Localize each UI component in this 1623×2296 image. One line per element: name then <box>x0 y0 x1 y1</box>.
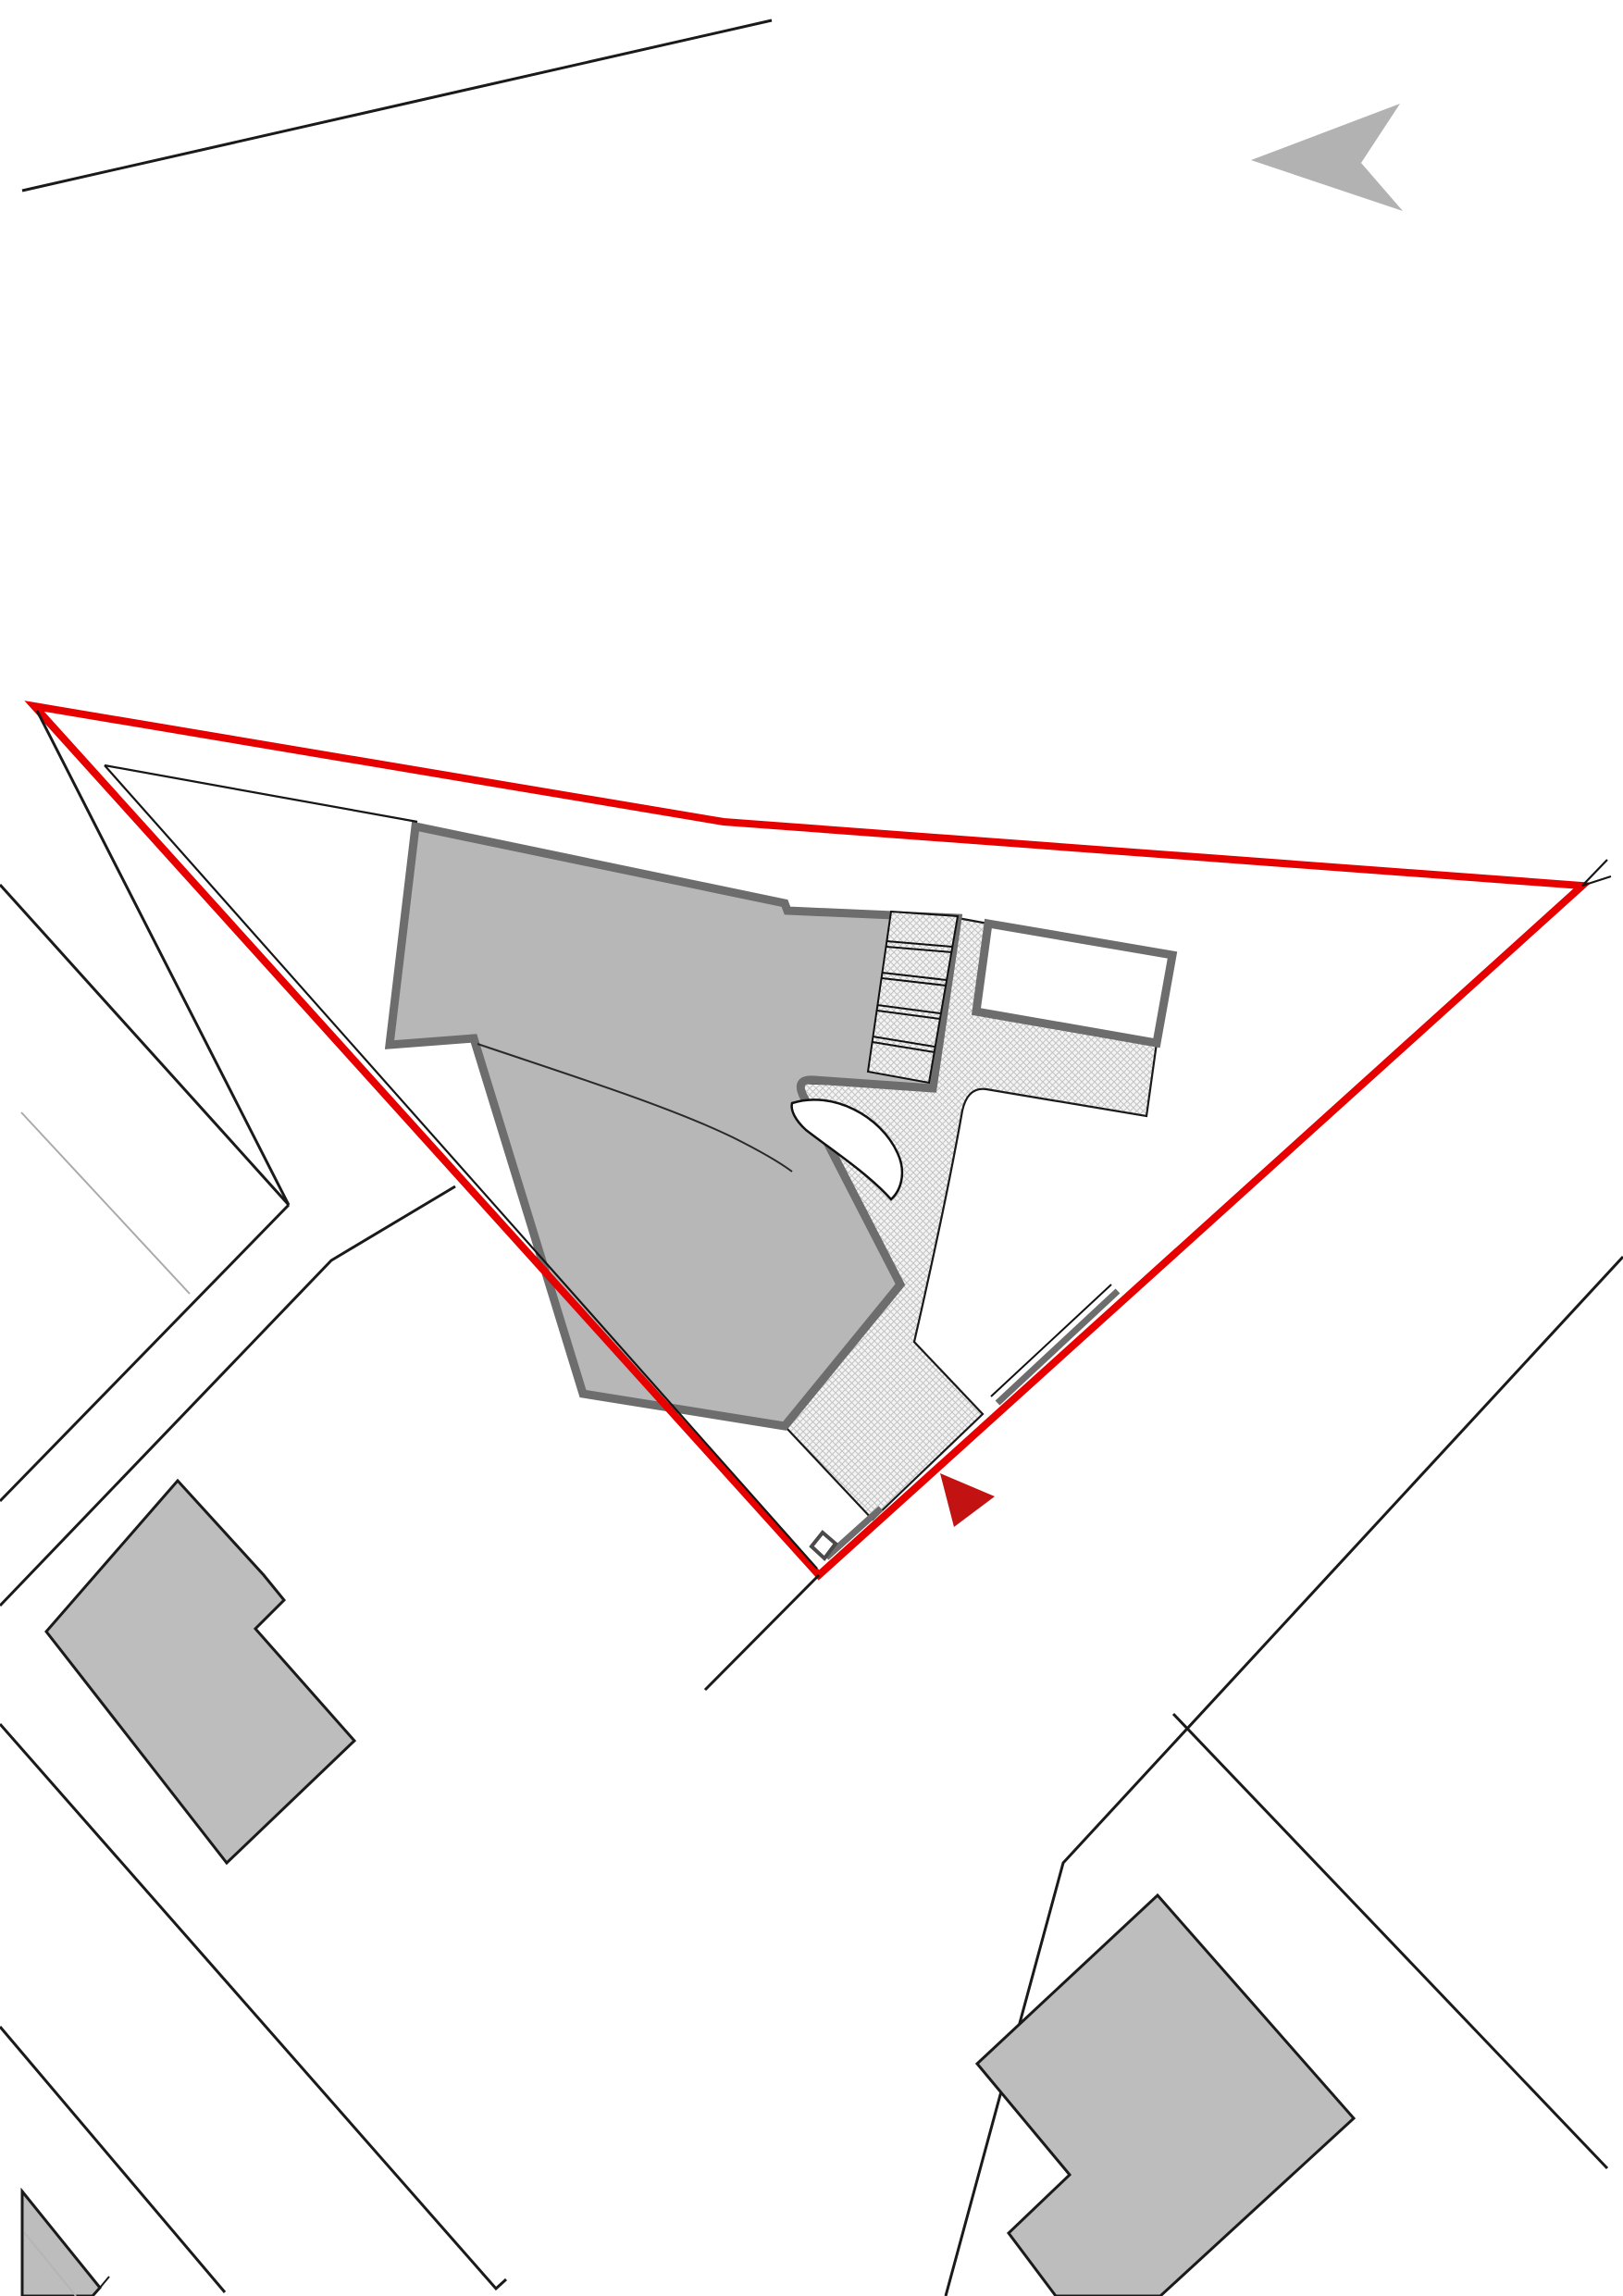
north-arrow-icon <box>1251 104 1403 211</box>
faint-parcel-line <box>21 1112 190 1294</box>
corner-building-tick <box>100 2277 109 2288</box>
road-line-from-vertex <box>705 1575 819 1690</box>
site-plan-canvas <box>0 0 1623 2296</box>
boundary-wall-east-gray <box>997 1291 1118 1403</box>
entrance-arrow-icon <box>940 1473 995 1527</box>
neighbor-building-southeast <box>977 1895 1354 2296</box>
parcel-line-top <box>22 20 772 191</box>
boundary-wall-entrance-gray <box>826 1508 881 1558</box>
site-plan <box>0 0 1623 2296</box>
boundary-wall-east-black <box>991 1285 1111 1396</box>
road-line-from-apex <box>37 711 289 1205</box>
road-line-northwest <box>0 885 289 1205</box>
inner-boundary-top <box>105 765 417 822</box>
neighbor-building-southwest <box>46 1481 354 1863</box>
